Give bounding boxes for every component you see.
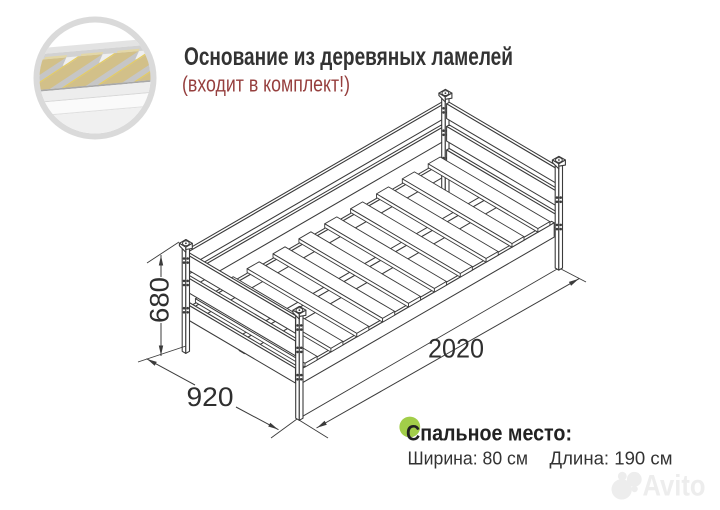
svg-text:Ширина: 80 см: Ширина: 80 см (408, 448, 529, 469)
svg-text:Основание из деревяных ламелей: Основание из деревяных ламелей (184, 43, 513, 71)
svg-text:920: 920 (187, 382, 234, 412)
svg-text:(входит в комплект!): (входит в комплект!) (182, 72, 350, 97)
svg-text:680: 680 (145, 277, 175, 323)
svg-text:Длина: 190 см: Длина: 190 см (550, 448, 673, 469)
svg-text:Спальное место:: Спальное место: (406, 421, 572, 446)
svg-text:2020: 2020 (428, 333, 484, 363)
svg-text:Avito: Avito (643, 470, 706, 503)
